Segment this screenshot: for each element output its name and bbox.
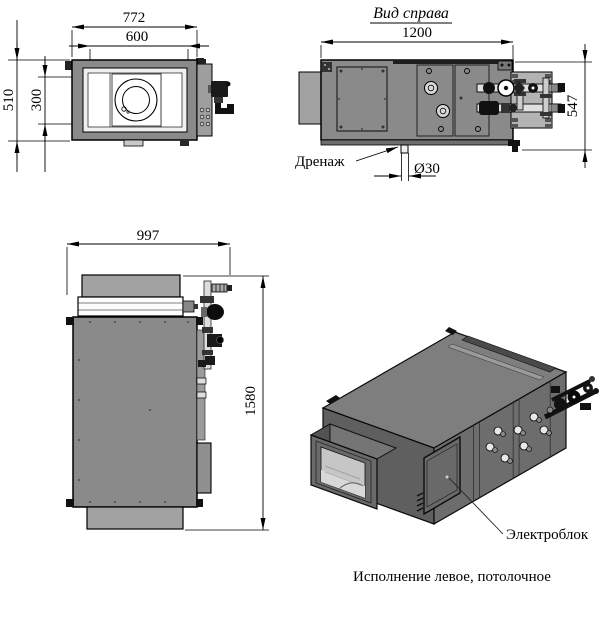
corner-bracket [322, 62, 332, 72]
pipe-connection [425, 82, 438, 95]
bottom-tab [124, 140, 143, 146]
drawing-caption: Исполнение левое, потолочное [353, 569, 551, 585]
dim-1580-label: 1580 [243, 386, 259, 416]
dim-drain-diameter-label: Ø30 [414, 161, 440, 177]
casing-end-face [73, 317, 197, 507]
pipe-connection [437, 105, 450, 118]
drain-label: Дренаж [295, 154, 345, 170]
fan-mount-plate [112, 74, 161, 126]
top-view-unit-body [65, 58, 234, 146]
dim-300-label: 300 [29, 89, 45, 112]
dim-600-label: 600 [126, 29, 149, 45]
right-view-title: Вид справа [373, 5, 449, 22]
valve-section-panel [455, 65, 489, 136]
drawing-canvas: 772 600 510 300 [0, 0, 600, 643]
valve-knob [206, 304, 224, 320]
electric-box-label: Электроблок [506, 527, 589, 543]
dim-547-label: 547 [565, 94, 581, 117]
top-rail [393, 60, 511, 64]
drain-pipe [401, 145, 408, 153]
pipe-stub [197, 392, 206, 398]
base-channel [321, 140, 513, 145]
access-panel [337, 67, 387, 131]
valve-handle [483, 82, 495, 94]
duct-stub [299, 72, 321, 124]
top-duct-flange [82, 275, 180, 297]
side-connection-panel [197, 64, 212, 136]
connector-bracket [183, 301, 194, 312]
pipe-stub [197, 378, 206, 384]
dim-772-label: 772 [123, 10, 146, 26]
bottom-fitting [180, 139, 189, 146]
coil-section-panel [417, 65, 453, 136]
dim-510-label: 510 [1, 89, 17, 112]
drain-elbow [508, 140, 520, 146]
technical-drawing-page: 772 600 510 300 [0, 0, 600, 643]
dim-1200-label: 1200 [402, 25, 432, 41]
dim-997-label: 997 [137, 228, 160, 244]
flexible-connector [78, 297, 183, 316]
pump-body [479, 101, 499, 115]
electric-box-edge [197, 443, 211, 493]
bottom-duct-flange [87, 507, 183, 529]
